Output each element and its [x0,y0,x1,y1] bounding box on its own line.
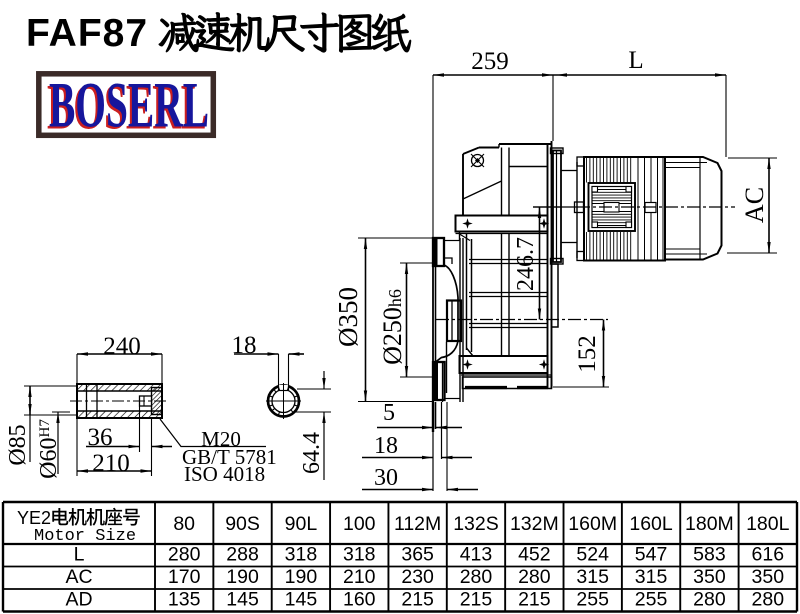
svg-text:255: 255 [576,589,609,611]
svg-text:FAF87: FAF87 [26,12,148,55]
svg-text:80: 80 [173,513,195,535]
svg-text:280: 280 [460,566,493,588]
svg-text:180M: 180M [685,513,734,535]
svg-text:288: 288 [226,544,259,566]
svg-text:132M: 132M [510,513,559,535]
svg-text:210: 210 [92,450,130,477]
svg-text:350: 350 [693,566,726,588]
svg-text:255: 255 [635,589,668,611]
svg-text:145: 145 [226,589,259,611]
svg-text:BOSERL: BOSERL [49,70,209,142]
svg-text:112M: 112M [394,513,441,535]
svg-text:90L: 90L [285,513,318,535]
svg-text:AC: AC [65,566,92,588]
svg-text:5: 5 [383,400,395,426]
svg-text:413: 413 [460,544,493,566]
svg-text:215: 215 [401,589,434,611]
svg-text:240: 240 [103,333,141,360]
svg-text:18: 18 [232,332,257,359]
svg-text:Motor Size: Motor Size [34,527,136,546]
svg-text:Ø350: Ø350 [333,287,363,347]
svg-text:30: 30 [374,465,398,491]
svg-text:36: 36 [88,424,113,451]
svg-text:452: 452 [518,544,551,566]
svg-text:280: 280 [518,566,551,588]
svg-text:524: 524 [576,544,609,566]
svg-text:18: 18 [374,433,398,459]
svg-text:AC: AC [740,187,769,223]
svg-text:315: 315 [576,566,609,588]
svg-text:210: 210 [343,566,376,588]
svg-text:L: L [628,47,643,74]
svg-text:190: 190 [285,566,318,588]
svg-text:160: 160 [343,589,376,611]
svg-text:160L: 160L [629,513,673,535]
svg-text:135: 135 [168,589,201,611]
svg-text:132S: 132S [453,513,499,535]
svg-text:180L: 180L [746,513,790,535]
svg-text:160M: 160M [568,513,617,535]
svg-text:190: 190 [226,566,259,588]
svg-text:Ø85: Ø85 [5,424,31,465]
svg-text:145: 145 [285,589,318,611]
svg-text:315: 315 [635,566,668,588]
svg-text:365: 365 [401,544,434,566]
svg-text:280: 280 [693,589,726,611]
svg-text:Ø250h6: Ø250h6 [378,289,407,365]
svg-text:YE2: YE2 [17,508,51,528]
svg-text:583: 583 [693,544,726,566]
svg-text:ISO 4018: ISO 4018 [184,462,265,486]
svg-text:64.4: 64.4 [299,432,325,474]
svg-text:280: 280 [168,544,201,566]
svg-text:152: 152 [574,335,601,373]
svg-text:230: 230 [401,566,434,588]
svg-text:90S: 90S [225,513,260,535]
svg-text:259: 259 [471,48,509,75]
svg-text:170: 170 [168,566,201,588]
svg-text:616: 616 [752,544,785,566]
svg-text:280: 280 [752,589,785,611]
svg-text:215: 215 [460,589,493,611]
svg-text:350: 350 [752,566,785,588]
svg-text:318: 318 [343,544,376,566]
svg-text:AD: AD [65,589,92,611]
svg-text:215: 215 [518,589,551,611]
svg-text:547: 547 [635,544,668,566]
svg-text:318: 318 [285,544,318,566]
svg-text:L: L [74,544,85,566]
svg-text:100: 100 [343,513,376,535]
